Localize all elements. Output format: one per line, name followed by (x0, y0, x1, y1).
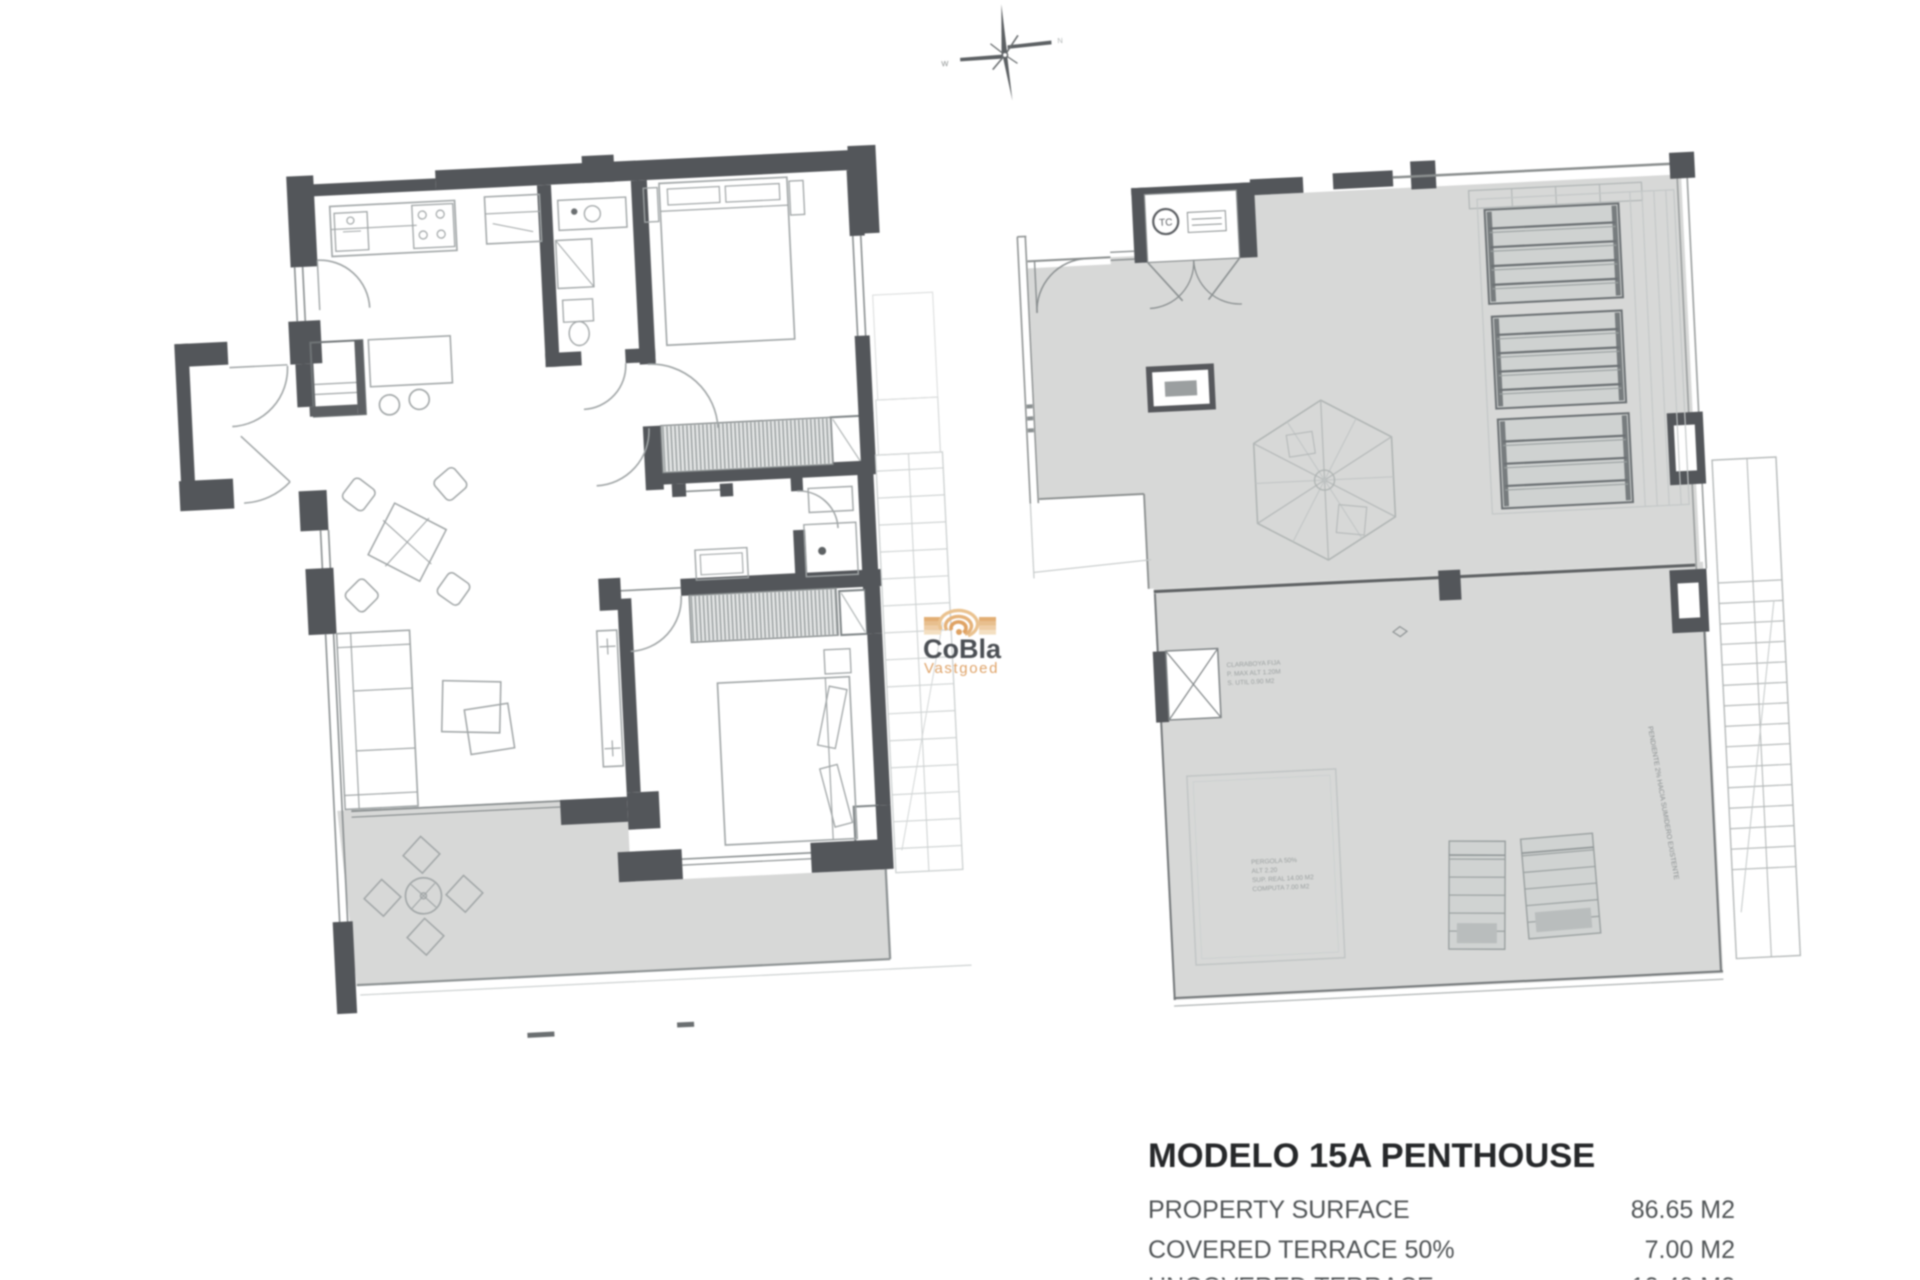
svg-text:COVERED TERRACE 50%: COVERED TERRACE 50% (1148, 1236, 1455, 1264)
svg-text:7.00 M2: 7.00 M2 (1645, 1236, 1735, 1264)
svg-text:MODELO 15A PENTHOUSE: MODELO 15A PENTHOUSE (1148, 1137, 1595, 1175)
svg-text:TC: TC (1159, 217, 1173, 229)
svg-text:86.65 M2: 86.65 M2 (1631, 1196, 1735, 1224)
svg-text:ALT 2.20: ALT 2.20 (1251, 867, 1277, 875)
svg-text:Vastgoed: Vastgoed (924, 660, 999, 677)
svg-text:12.40 M2: 12.40 M2 (1631, 1273, 1735, 1280)
svg-text:PROPERTY SURFACE: PROPERTY SURFACE (1148, 1196, 1410, 1224)
svg-text:N: N (1057, 36, 1063, 45)
svg-text:UNCOVERED TERRACE: UNCOVERED TERRACE (1148, 1273, 1434, 1280)
